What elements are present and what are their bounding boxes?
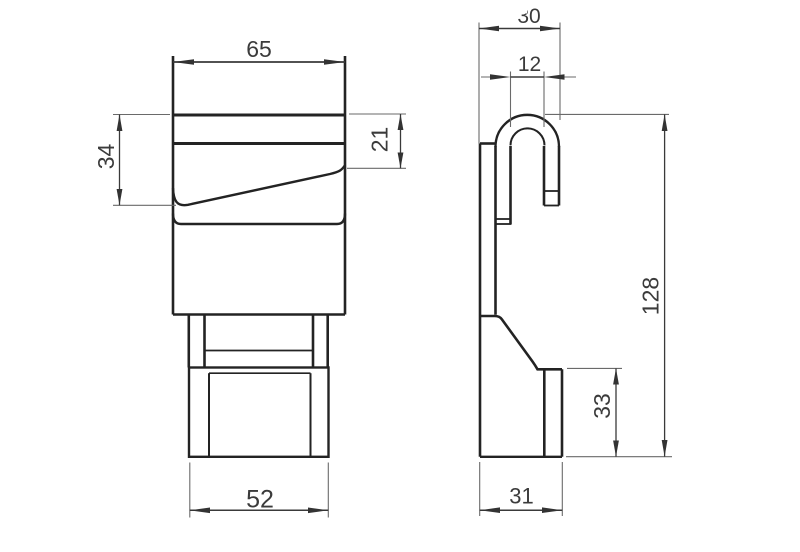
svg-text:52: 52 xyxy=(246,486,274,514)
svg-text:31: 31 xyxy=(509,484,533,509)
svg-text:34: 34 xyxy=(93,144,119,170)
svg-text:33: 33 xyxy=(589,393,615,419)
svg-text:65: 65 xyxy=(246,36,272,62)
svg-text:12: 12 xyxy=(518,53,541,76)
svg-text:128: 128 xyxy=(638,277,664,315)
svg-text:21: 21 xyxy=(367,127,393,153)
